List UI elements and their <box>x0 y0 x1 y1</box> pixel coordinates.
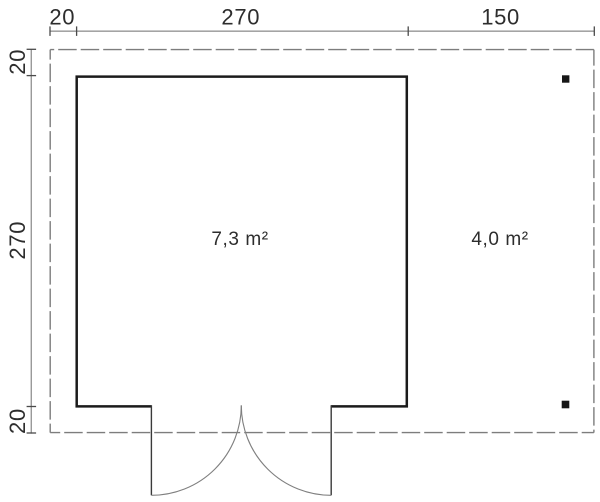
svg-text:20: 20 <box>5 49 30 75</box>
svg-text:20: 20 <box>49 5 75 30</box>
svg-text:270: 270 <box>5 221 30 260</box>
svg-text:20: 20 <box>5 408 30 434</box>
svg-text:7,3 m²: 7,3 m² <box>211 229 268 250</box>
svg-text:270: 270 <box>221 5 260 30</box>
svg-text:4,0 m²: 4,0 m² <box>471 229 528 250</box>
svg-text:150: 150 <box>481 5 520 30</box>
